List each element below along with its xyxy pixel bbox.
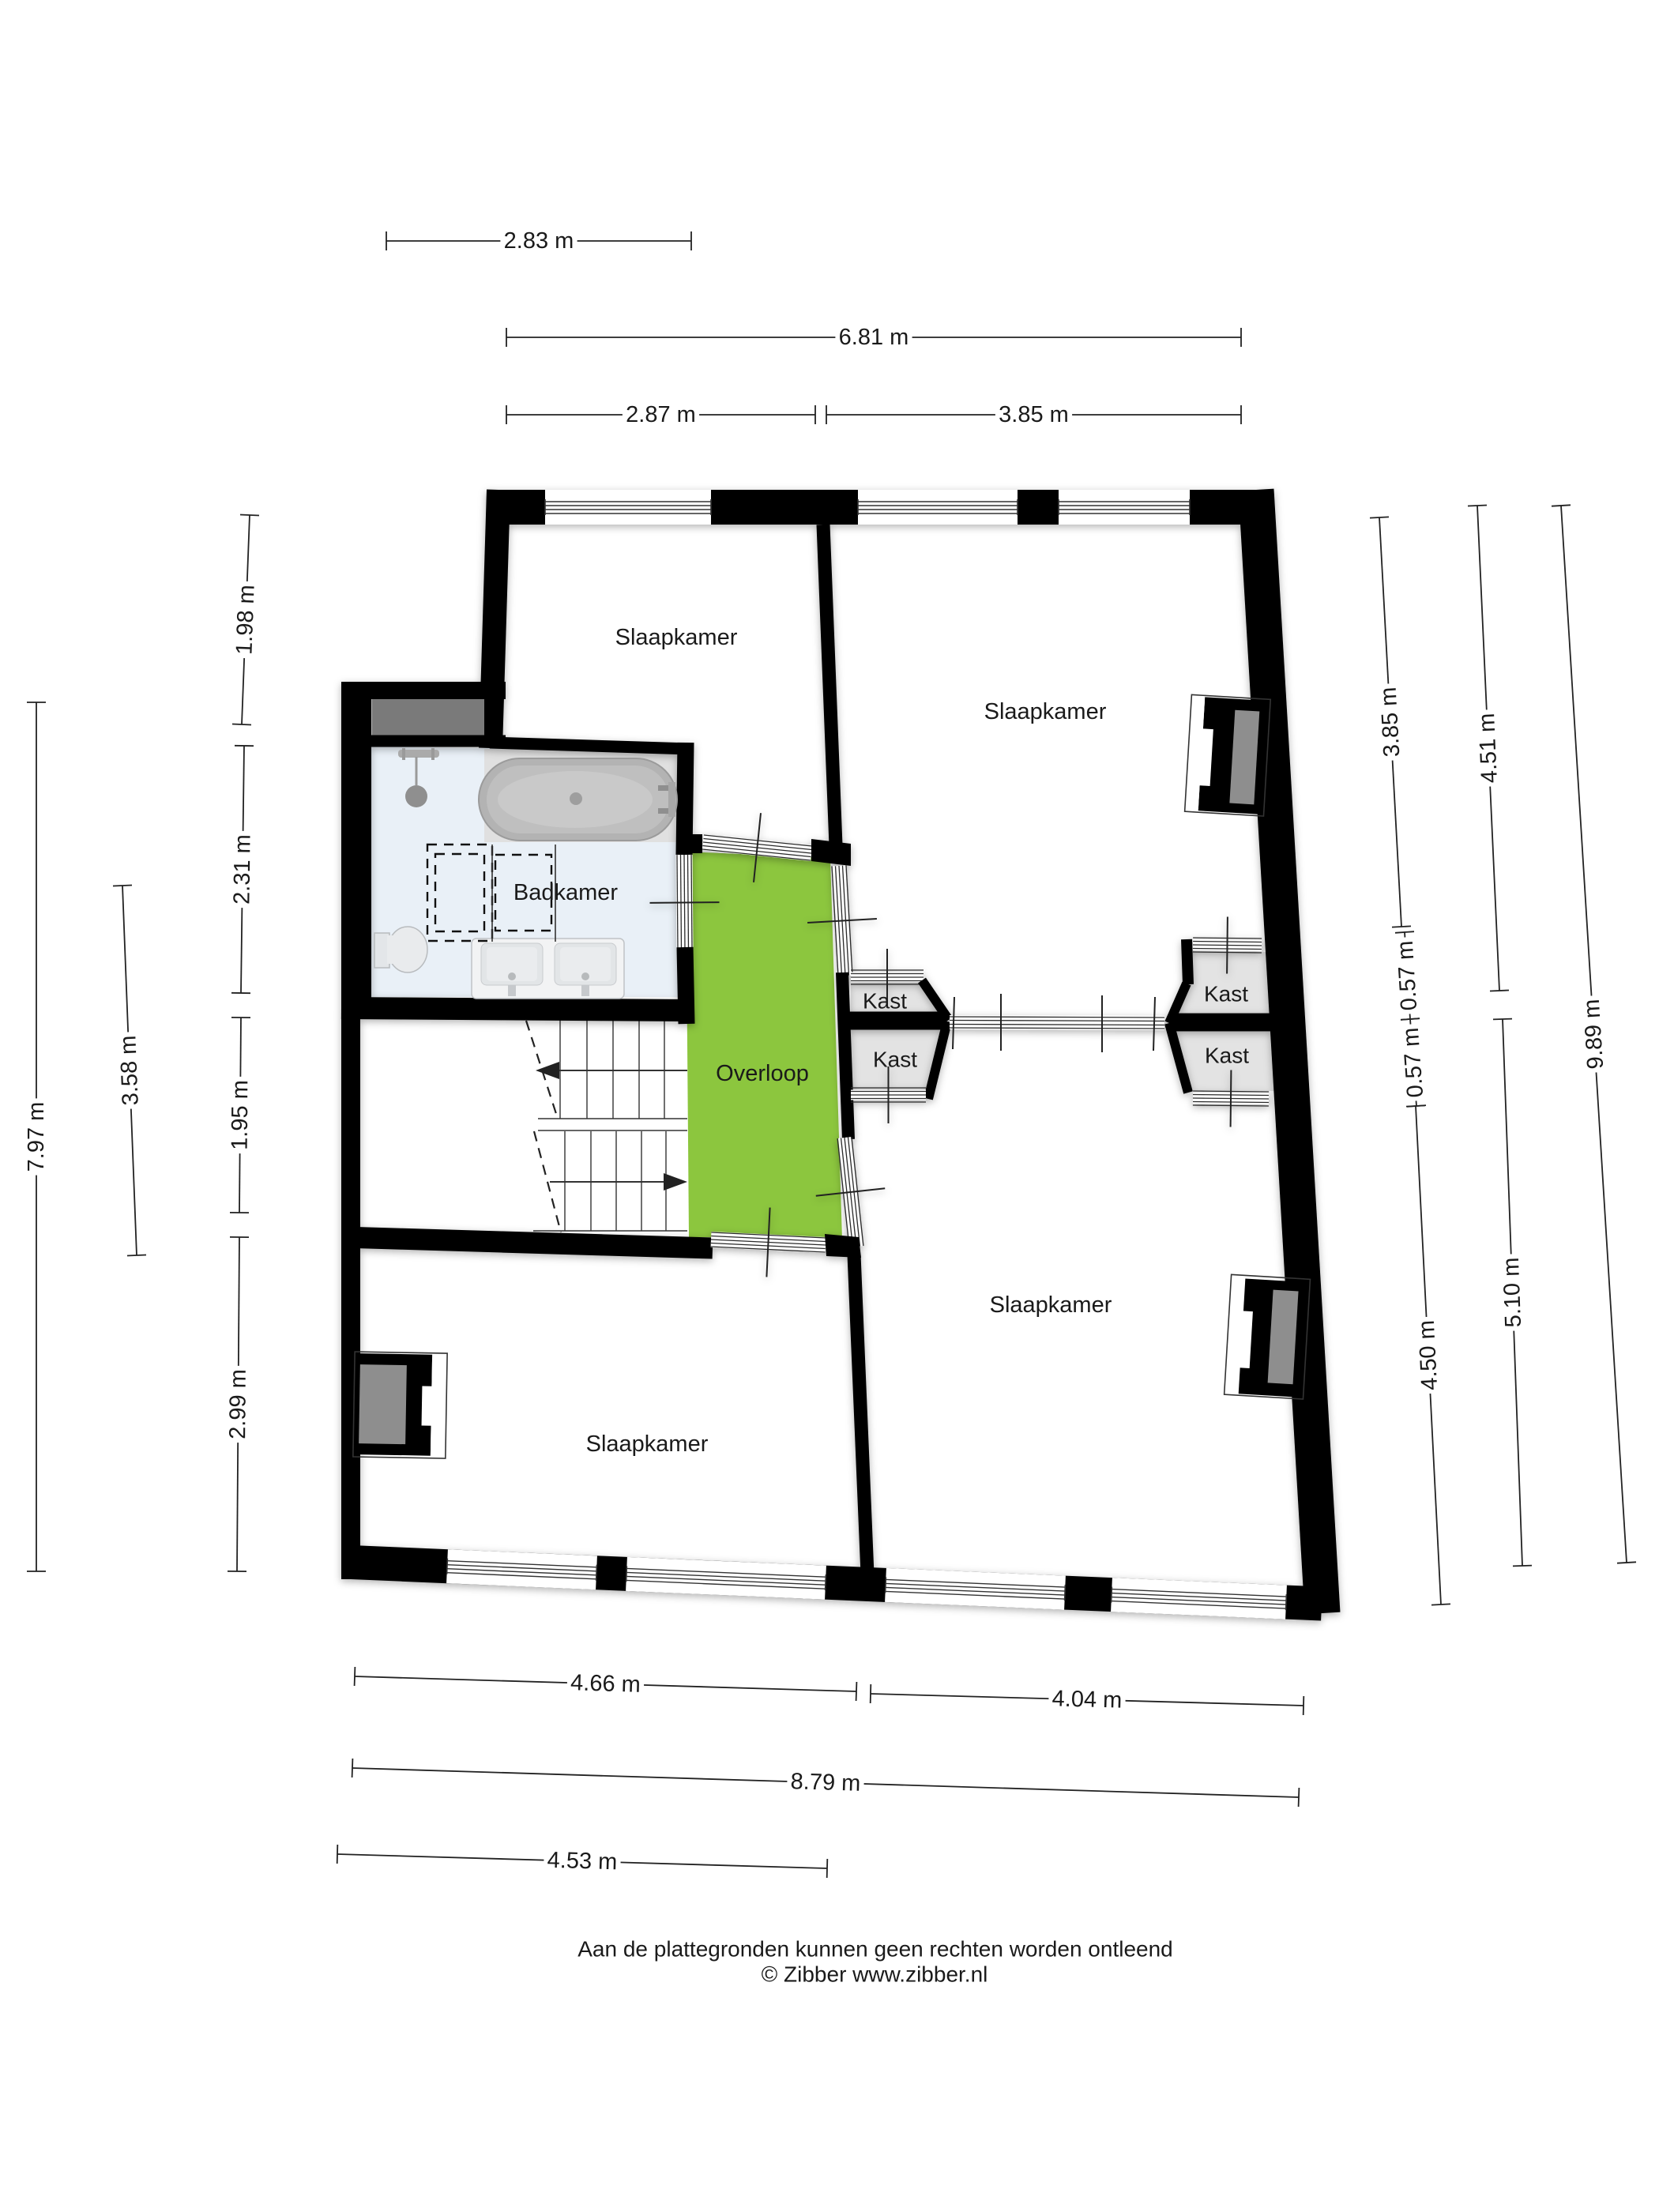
svg-text:4.51 m: 4.51 m [1474,713,1503,784]
svg-text:3.85 m: 3.85 m [1376,687,1405,758]
svg-text:Slaapkamer: Slaapkamer [586,1431,709,1457]
svg-text:7.97 m: 7.97 m [24,1102,49,1172]
svg-text:Badkamer: Badkamer [513,880,619,905]
svg-text:© Zibber www.zibber.nl: © Zibber www.zibber.nl [762,1962,988,1987]
svg-text:2.83 m: 2.83 m [504,228,574,254]
svg-text:4.53 m: 4.53 m [547,1848,618,1875]
svg-text:Kast: Kast [873,1048,917,1072]
svg-text:Aan de plattegronden kunnen ge: Aan de plattegronden kunnen geen rechten… [577,1937,1172,1962]
svg-text:Kast: Kast [1204,982,1248,1006]
svg-text:6.81 m: 6.81 m [839,325,909,350]
svg-text:3.58 m: 3.58 m [115,1035,143,1106]
svg-text:Slaapkamer: Slaapkamer [990,1292,1112,1318]
svg-text:2.31 m: 2.31 m [229,834,255,905]
svg-text:3.85 m: 3.85 m [999,402,1069,427]
svg-text:Kast: Kast [863,989,907,1014]
svg-text:4.50 m: 4.50 m [1414,1319,1443,1390]
svg-text:2.99 m: 2.99 m [225,1369,251,1439]
svg-text:Slaapkamer: Slaapkamer [615,625,738,650]
svg-text:2.87 m: 2.87 m [626,402,696,427]
svg-text:0.57 m: 0.57 m [1398,1027,1428,1099]
svg-text:4.66 m: 4.66 m [570,1670,641,1698]
svg-text:1.95 m: 1.95 m [228,1080,254,1150]
svg-text:Overloop: Overloop [716,1061,809,1086]
svg-text:5.10 m: 5.10 m [1499,1257,1526,1328]
svg-text:9.89 m: 9.89 m [1579,999,1608,1070]
svg-text:1.98 m: 1.98 m [231,585,259,656]
svg-text:Slaapkamer: Slaapkamer [984,699,1107,724]
svg-text:0.57 m: 0.57 m [1393,940,1423,1012]
svg-text:Kast: Kast [1205,1044,1249,1068]
svg-text:4.04 m: 4.04 m [1051,1686,1123,1713]
svg-text:8.79 m: 8.79 m [790,1769,861,1796]
